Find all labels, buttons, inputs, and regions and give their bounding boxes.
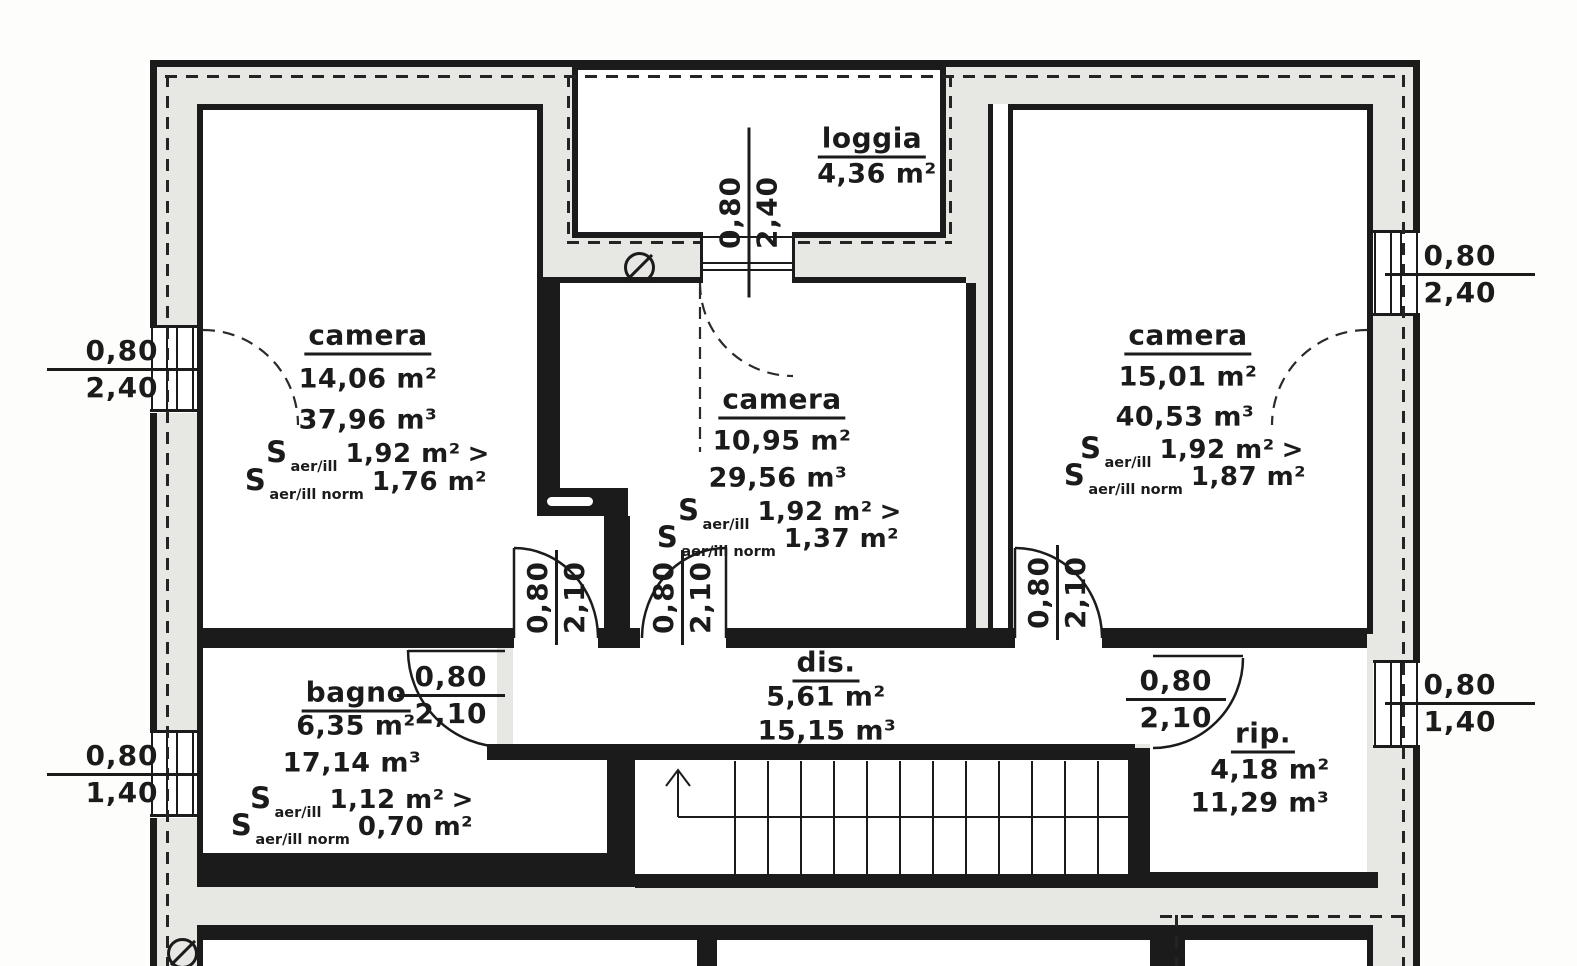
volume-disimpegno: 15,15 m³ — [758, 716, 897, 747]
stairwell — [635, 760, 1130, 874]
dim-window-left-lower: 0,80 1,40 — [47, 741, 197, 808]
wall — [150, 60, 1420, 67]
label-loggia: loggia — [818, 122, 926, 159]
dim-door-bagno: 0,80 2,10 — [376, 662, 526, 729]
slashed-circle-icon — [624, 252, 655, 283]
dim-window-left-upper: 0,80 2,40 — [47, 336, 197, 403]
room-lower-right — [1185, 940, 1367, 966]
dim-door-camera-right: 0,80 2,10 — [1024, 545, 1091, 640]
volume-camera-middle: 29,56 m³ — [709, 463, 848, 494]
wall — [150, 60, 157, 966]
wall — [197, 925, 203, 966]
dim-loggia-door: 0,80 2,40 — [716, 128, 783, 298]
wall — [1367, 925, 1373, 966]
wall — [1367, 104, 1373, 634]
s-norm-bagno: Saer/ill norm0,70 m² — [231, 808, 473, 842]
eaves-line — [949, 75, 952, 243]
wall — [697, 925, 717, 966]
wall — [635, 874, 1135, 888]
wall-niche — [545, 495, 595, 508]
wall — [197, 925, 1367, 940]
s-norm-camera-right: Saer/ill norm1,87 m² — [1064, 458, 1306, 492]
wall — [966, 283, 976, 628]
dim-door-camera-left: 0,80 2,10 — [523, 550, 590, 645]
slashed-circle-icon — [167, 938, 198, 966]
eaves-line — [1402, 75, 1405, 966]
area-loggia: 4,36 m² — [817, 159, 936, 190]
volume-bagno: 17,14 m³ — [283, 748, 422, 779]
wall — [1128, 872, 1378, 888]
label-camera-right: camera — [1124, 319, 1251, 356]
wall — [197, 628, 1367, 648]
volume-ripostiglio: 11,29 m³ — [1191, 788, 1330, 819]
eaves-line — [567, 75, 570, 243]
wall-cavity — [993, 104, 1008, 634]
label-camera-left: camera — [304, 319, 431, 356]
room-lower-middle — [717, 940, 1150, 966]
label-camera-middle: camera — [718, 383, 845, 420]
wall — [1128, 748, 1150, 872]
eaves-line — [166, 75, 169, 966]
dim-window-right-upper: 0,80 2,40 — [1385, 241, 1535, 308]
floor-plan: loggia 4,36 m² camera 14,06 m² 37,96 m³ … — [0, 0, 1577, 966]
wall — [537, 104, 543, 283]
area-ripostiglio: 4,18 m² — [1210, 755, 1329, 786]
dim-window-right-lower: 0,80 1,40 — [1385, 670, 1535, 737]
label-disimpegno: dis. — [793, 646, 860, 683]
area-camera-left: 14,06 m² — [299, 364, 438, 395]
eaves-line — [1160, 915, 1405, 918]
volume-camera-left: 37,96 m³ — [299, 405, 438, 436]
dim-door-camera-middle: 0,80 2,10 — [649, 550, 716, 645]
room-lower-left — [203, 940, 697, 966]
wall — [1008, 104, 1367, 110]
area-camera-middle: 10,95 m² — [713, 426, 852, 457]
area-disimpegno: 5,61 m² — [766, 682, 885, 713]
s-norm-camera-left: Saer/ill norm1,76 m² — [245, 463, 487, 497]
eaves-line — [1175, 915, 1178, 966]
wall — [1413, 60, 1420, 966]
s-norm-camera-middle: Saer/ill norm1,37 m² — [657, 520, 899, 554]
volume-camera-right: 40,53 m³ — [1116, 402, 1255, 433]
wall — [537, 277, 560, 490]
dim-door-ripostiglio: 0,80 2,10 — [1101, 666, 1251, 733]
eaves-line — [165, 75, 1405, 78]
wall — [1150, 925, 1185, 966]
wall — [197, 853, 635, 887]
area-camera-right: 15,01 m² — [1119, 362, 1258, 393]
wall — [197, 104, 203, 887]
wall — [1008, 104, 1013, 634]
wall — [197, 104, 543, 110]
